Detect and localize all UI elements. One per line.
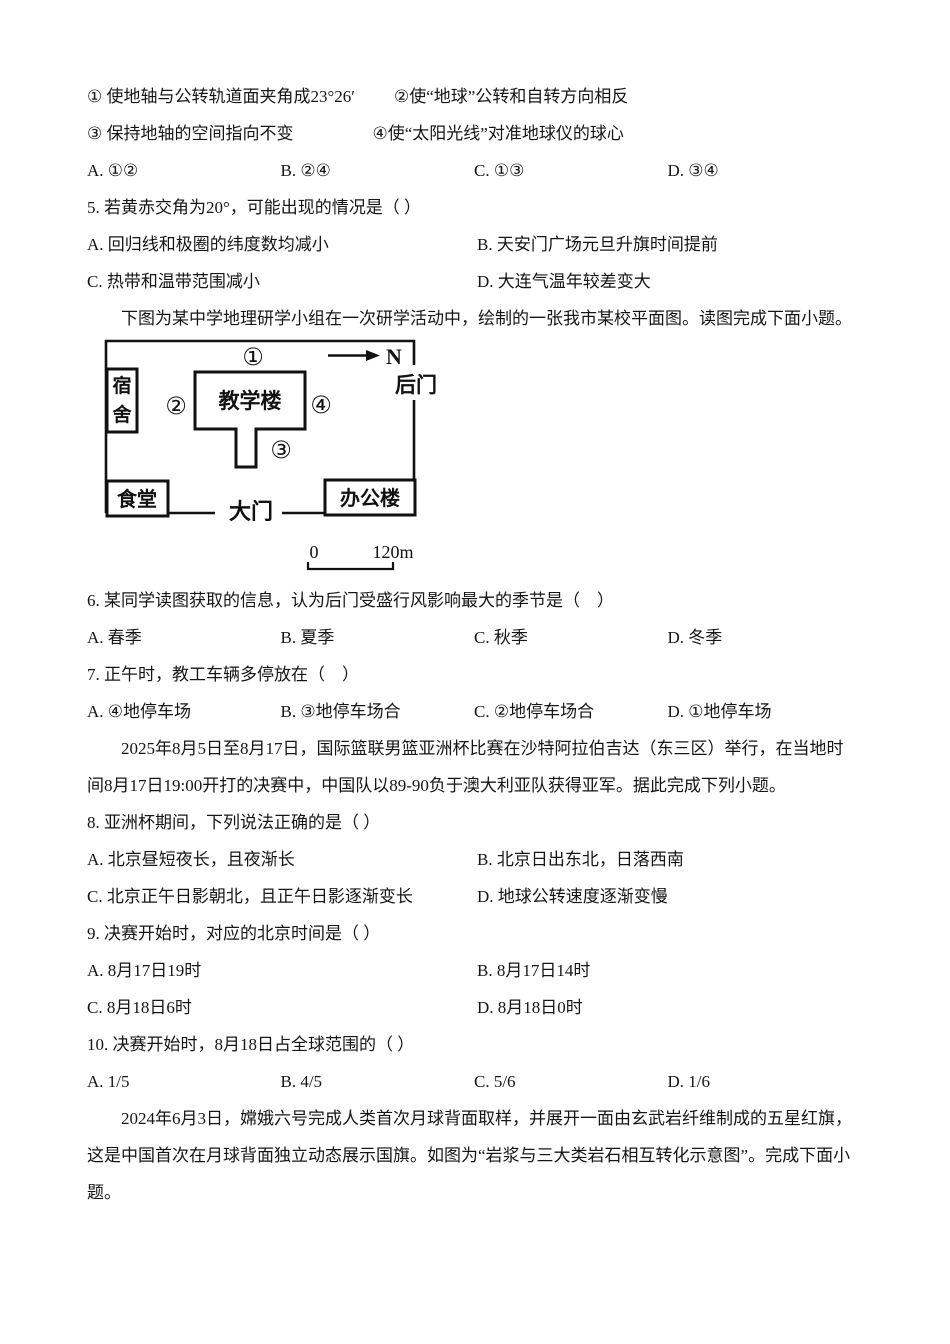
map-intro: 下图为某中学地理研学小组在一次研学活动中，绘制的一张我市某校平面图。读图完成下面…: [87, 300, 875, 337]
q6-option-a: A. 春季: [87, 619, 281, 656]
q6-option-c: C. 秋季: [474, 619, 668, 656]
moon-paragraph-line1: 2024年6月3日，嫦娥六号完成人类首次月球背面取样，并展开一面由玄武岩纤维制成…: [87, 1100, 875, 1137]
q6-stem: 6. 某同学读图获取的信息，认为后门受盛行风影响最大的季节是（ ）: [87, 582, 875, 619]
q8-options-row1: A. 北京昼短夜长，且夜渐长 B. 北京日出东北，日落西南: [87, 841, 875, 878]
q8-stem: 8. 亚洲杯期间，下列说法正确的是（ ）: [87, 804, 875, 841]
q9-option-d: D. 8月18日0时: [477, 989, 875, 1026]
q8-options-row2: C. 北京正午日影朝北，且正午日影逐渐变长 D. 地球公转速度逐渐变慢: [87, 878, 875, 915]
q6-option-b: B. 夏季: [281, 619, 475, 656]
q5-option-c: C. 热带和温带范围减小: [87, 263, 477, 300]
dormitory-label-char2: 舍: [112, 403, 132, 426]
office-building-label: 办公楼: [340, 486, 400, 510]
q4-statements-row1: ① 使地轴与公转轨道面夹角成23°26′②使“地球”公转和自转方向相反: [87, 78, 875, 115]
exam-content: ① 使地轴与公转轨道面夹角成23°26′②使“地球”公转和自转方向相反 ③ 保持…: [87, 78, 875, 1211]
q10-option-b: B. 4/5: [281, 1063, 475, 1100]
q7-options-row: A. ④地停车场 B. ③地停车场合 C. ②地停车场合 D. ①地停车场: [87, 693, 875, 730]
campus-map-svg: 宿 舍 教学楼 ① ② ③ ④ N 后门 食堂: [103, 337, 468, 582]
parking-marker-1: ①: [242, 343, 264, 371]
scale-end-label: 120m: [372, 542, 413, 562]
q5-stem: 5. 若黄赤交角为20°，可能出现的情况是（ ）: [87, 189, 875, 226]
canteen-label: 食堂: [117, 487, 157, 511]
q5-option-d: D. 大连气温年较差变大: [477, 263, 875, 300]
exam-page: ① 使地轴与公转轨道面夹角成23°26′②使“地球”公转和自转方向相反 ③ 保持…: [0, 0, 950, 1344]
campus-map-figure: 宿 舍 教学楼 ① ② ③ ④ N 后门 食堂: [103, 337, 875, 582]
q7-stem: 7. 正午时，教工车辆多停放在（ ）: [87, 656, 875, 693]
q10-option-a: A. 1/5: [87, 1063, 281, 1100]
q8-option-d: D. 地球公转速度逐渐变慢: [477, 878, 875, 915]
q8-option-b: B. 北京日出东北，日落西南: [477, 841, 875, 878]
parking-marker-2: ②: [165, 392, 187, 420]
q4-options-row: A. ①② B. ②④ C. ①③ D. ③④: [87, 152, 875, 189]
q9-options-row1: A. 8月17日19时 B. 8月17日14时: [87, 952, 875, 989]
moon-paragraph-line2: 这是中国首次在月球背面独立动态展示国旗。如图为“岩浆与三大类岩石相互转化示意图”…: [87, 1137, 875, 1174]
q6-option-d: D. 冬季: [668, 619, 876, 656]
dormitory-label-char1: 宿: [112, 374, 131, 397]
q5-option-b: B. 天安门广场元旦升旗时间提前: [477, 226, 875, 263]
scale-zero-label: 0: [310, 542, 319, 562]
main-gate-label: 大门: [229, 499, 273, 524]
scale-bar: [308, 562, 393, 569]
teaching-building-label: 教学楼: [219, 389, 282, 413]
q4-statement-3: ③ 保持地轴的空间指向不变: [87, 115, 294, 152]
q4-option-b: B. ②④: [281, 152, 475, 189]
back-gate-label: 后门: [395, 373, 437, 397]
q7-option-a: A. ④地停车场: [87, 693, 281, 730]
moon-paragraph-line3: 题。: [87, 1174, 875, 1211]
q10-option-d: D. 1/6: [668, 1063, 876, 1100]
q7-option-c: C. ②地停车场合: [474, 693, 668, 730]
q8-option-c: C. 北京正午日影朝北，且正午日影逐渐变长: [87, 878, 477, 915]
parking-marker-3: ③: [270, 436, 292, 464]
parking-marker-4: ④: [310, 391, 332, 419]
q4-statement-1: ① 使地轴与公转轨道面夹角成23°26′: [87, 78, 355, 115]
q4-statement-2: ②使“地球”公转和自转方向相反: [394, 78, 628, 115]
q10-options-row: A. 1/5 B. 4/5 C. 5/6 D. 1/6: [87, 1063, 875, 1100]
north-arrow-head: [366, 350, 380, 361]
q10-stem: 10. 决赛开始时，8月18日占全球范围的（ ）: [87, 1026, 875, 1063]
q7-option-b: B. ③地停车场合: [281, 693, 475, 730]
q4-option-c: C. ①③: [474, 152, 668, 189]
q9-options-row2: C. 8月18日6时 D. 8月18日0时: [87, 989, 875, 1026]
q7-option-d: D. ①地停车场: [668, 693, 876, 730]
q9-option-c: C. 8月18日6时: [87, 989, 477, 1026]
q5-options-row2: C. 热带和温带范围减小 D. 大连气温年较差变大: [87, 263, 875, 300]
basketball-paragraph-line2: 间8月17日19:00开打的决赛中，中国队以89-90负于澳大利亚队获得亚军。据…: [87, 767, 875, 804]
q9-option-b: B. 8月17日14时: [477, 952, 875, 989]
q9-stem: 9. 决赛开始时，对应的北京时间是（ ）: [87, 915, 875, 952]
basketball-paragraph-line1: 2025年8月5日至8月17日，国际篮联男篮亚洲杯比赛在沙特阿拉伯吉达（东三区）…: [87, 730, 875, 767]
north-label: N: [386, 344, 402, 369]
q10-option-c: C. 5/6: [474, 1063, 668, 1100]
q4-statement-4: ④使“太阳光线”对准地球仪的球心: [373, 115, 624, 152]
q9-option-a: A. 8月17日19时: [87, 952, 477, 989]
q8-option-a: A. 北京昼短夜长，且夜渐长: [87, 841, 477, 878]
q4-statements-row2: ③ 保持地轴的空间指向不变④使“太阳光线”对准地球仪的球心: [87, 115, 875, 152]
q5-options-row1: A. 回归线和极圈的纬度数均减小 B. 天安门广场元旦升旗时间提前: [87, 226, 875, 263]
q5-option-a: A. 回归线和极圈的纬度数均减小: [87, 226, 477, 263]
q4-option-d: D. ③④: [668, 152, 876, 189]
q6-options-row: A. 春季 B. 夏季 C. 秋季 D. 冬季: [87, 619, 875, 656]
q4-option-a: A. ①②: [87, 152, 281, 189]
